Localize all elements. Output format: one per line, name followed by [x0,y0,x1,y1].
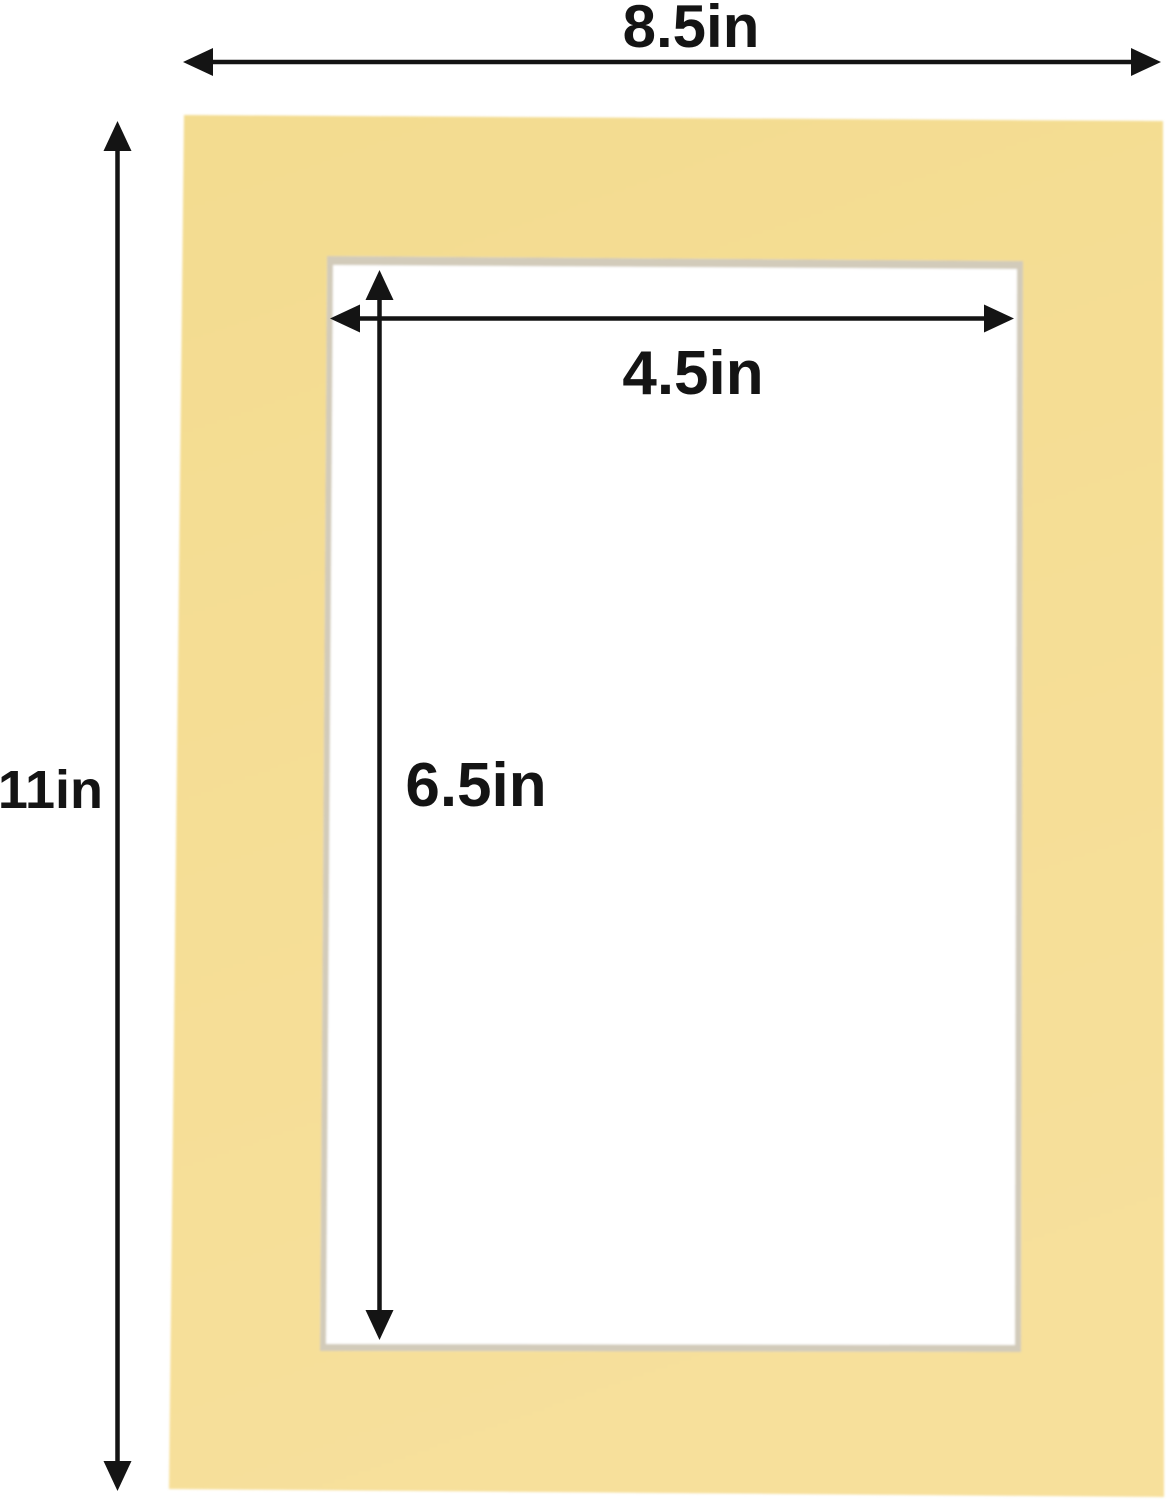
svg-text:11in: 11in [0,760,103,820]
svg-text:6.5in: 6.5in [405,751,546,820]
svg-text:4.5in: 4.5in [622,339,763,408]
svg-text:8.5in: 8.5in [623,0,760,60]
